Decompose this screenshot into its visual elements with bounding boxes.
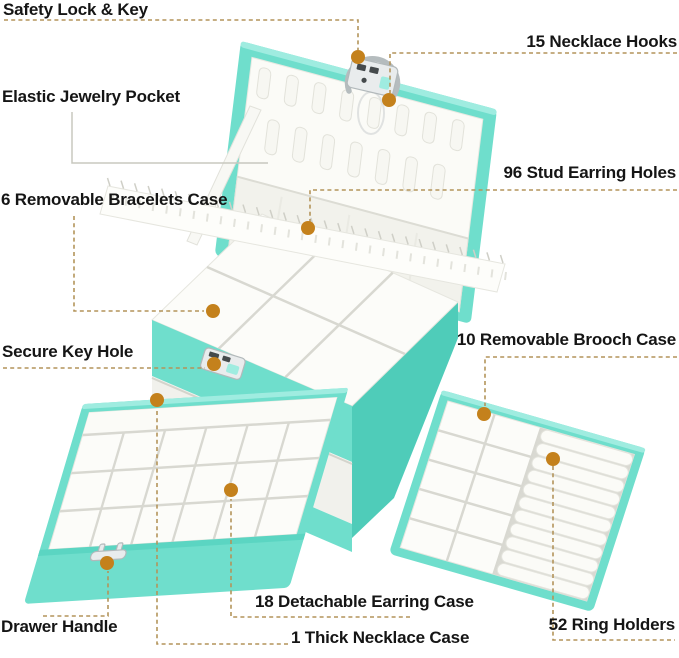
label-detachable-earring-case: 18 Detachable Earring Case — [255, 593, 474, 612]
callout-safety-lock — [4, 20, 358, 50]
drawer — [24, 388, 349, 604]
brooch-tray — [389, 390, 646, 612]
label-stud-earring-holes: 96 Stud Earring Holes — [504, 164, 676, 183]
label-elastic-jewelry-pocket: Elastic Jewelry Pocket — [2, 88, 180, 107]
label-removable-bracelets-case: 6 Removable Bracelets Case — [1, 191, 227, 210]
callout-brooch-case — [485, 357, 677, 406]
label-removable-brooch-case: 10 Removable Brooch Case — [457, 331, 676, 350]
callout-necklace-hooks — [390, 53, 677, 93]
label-necklace-hooks: 15 Necklace Hooks — [526, 33, 677, 52]
label-thick-necklace-case: 1 Thick Necklace Case — [291, 629, 469, 648]
label-drawer-handle: Drawer Handle — [1, 618, 117, 637]
product-infographic: Safety Lock & Key 15 Necklace Hooks Elas… — [0, 0, 679, 658]
label-safety-lock-key: Safety Lock & Key — [3, 1, 148, 20]
label-secure-key-hole: Secure Key Hole — [2, 343, 133, 362]
label-ring-holders: 52 Ring Holders — [549, 616, 675, 635]
